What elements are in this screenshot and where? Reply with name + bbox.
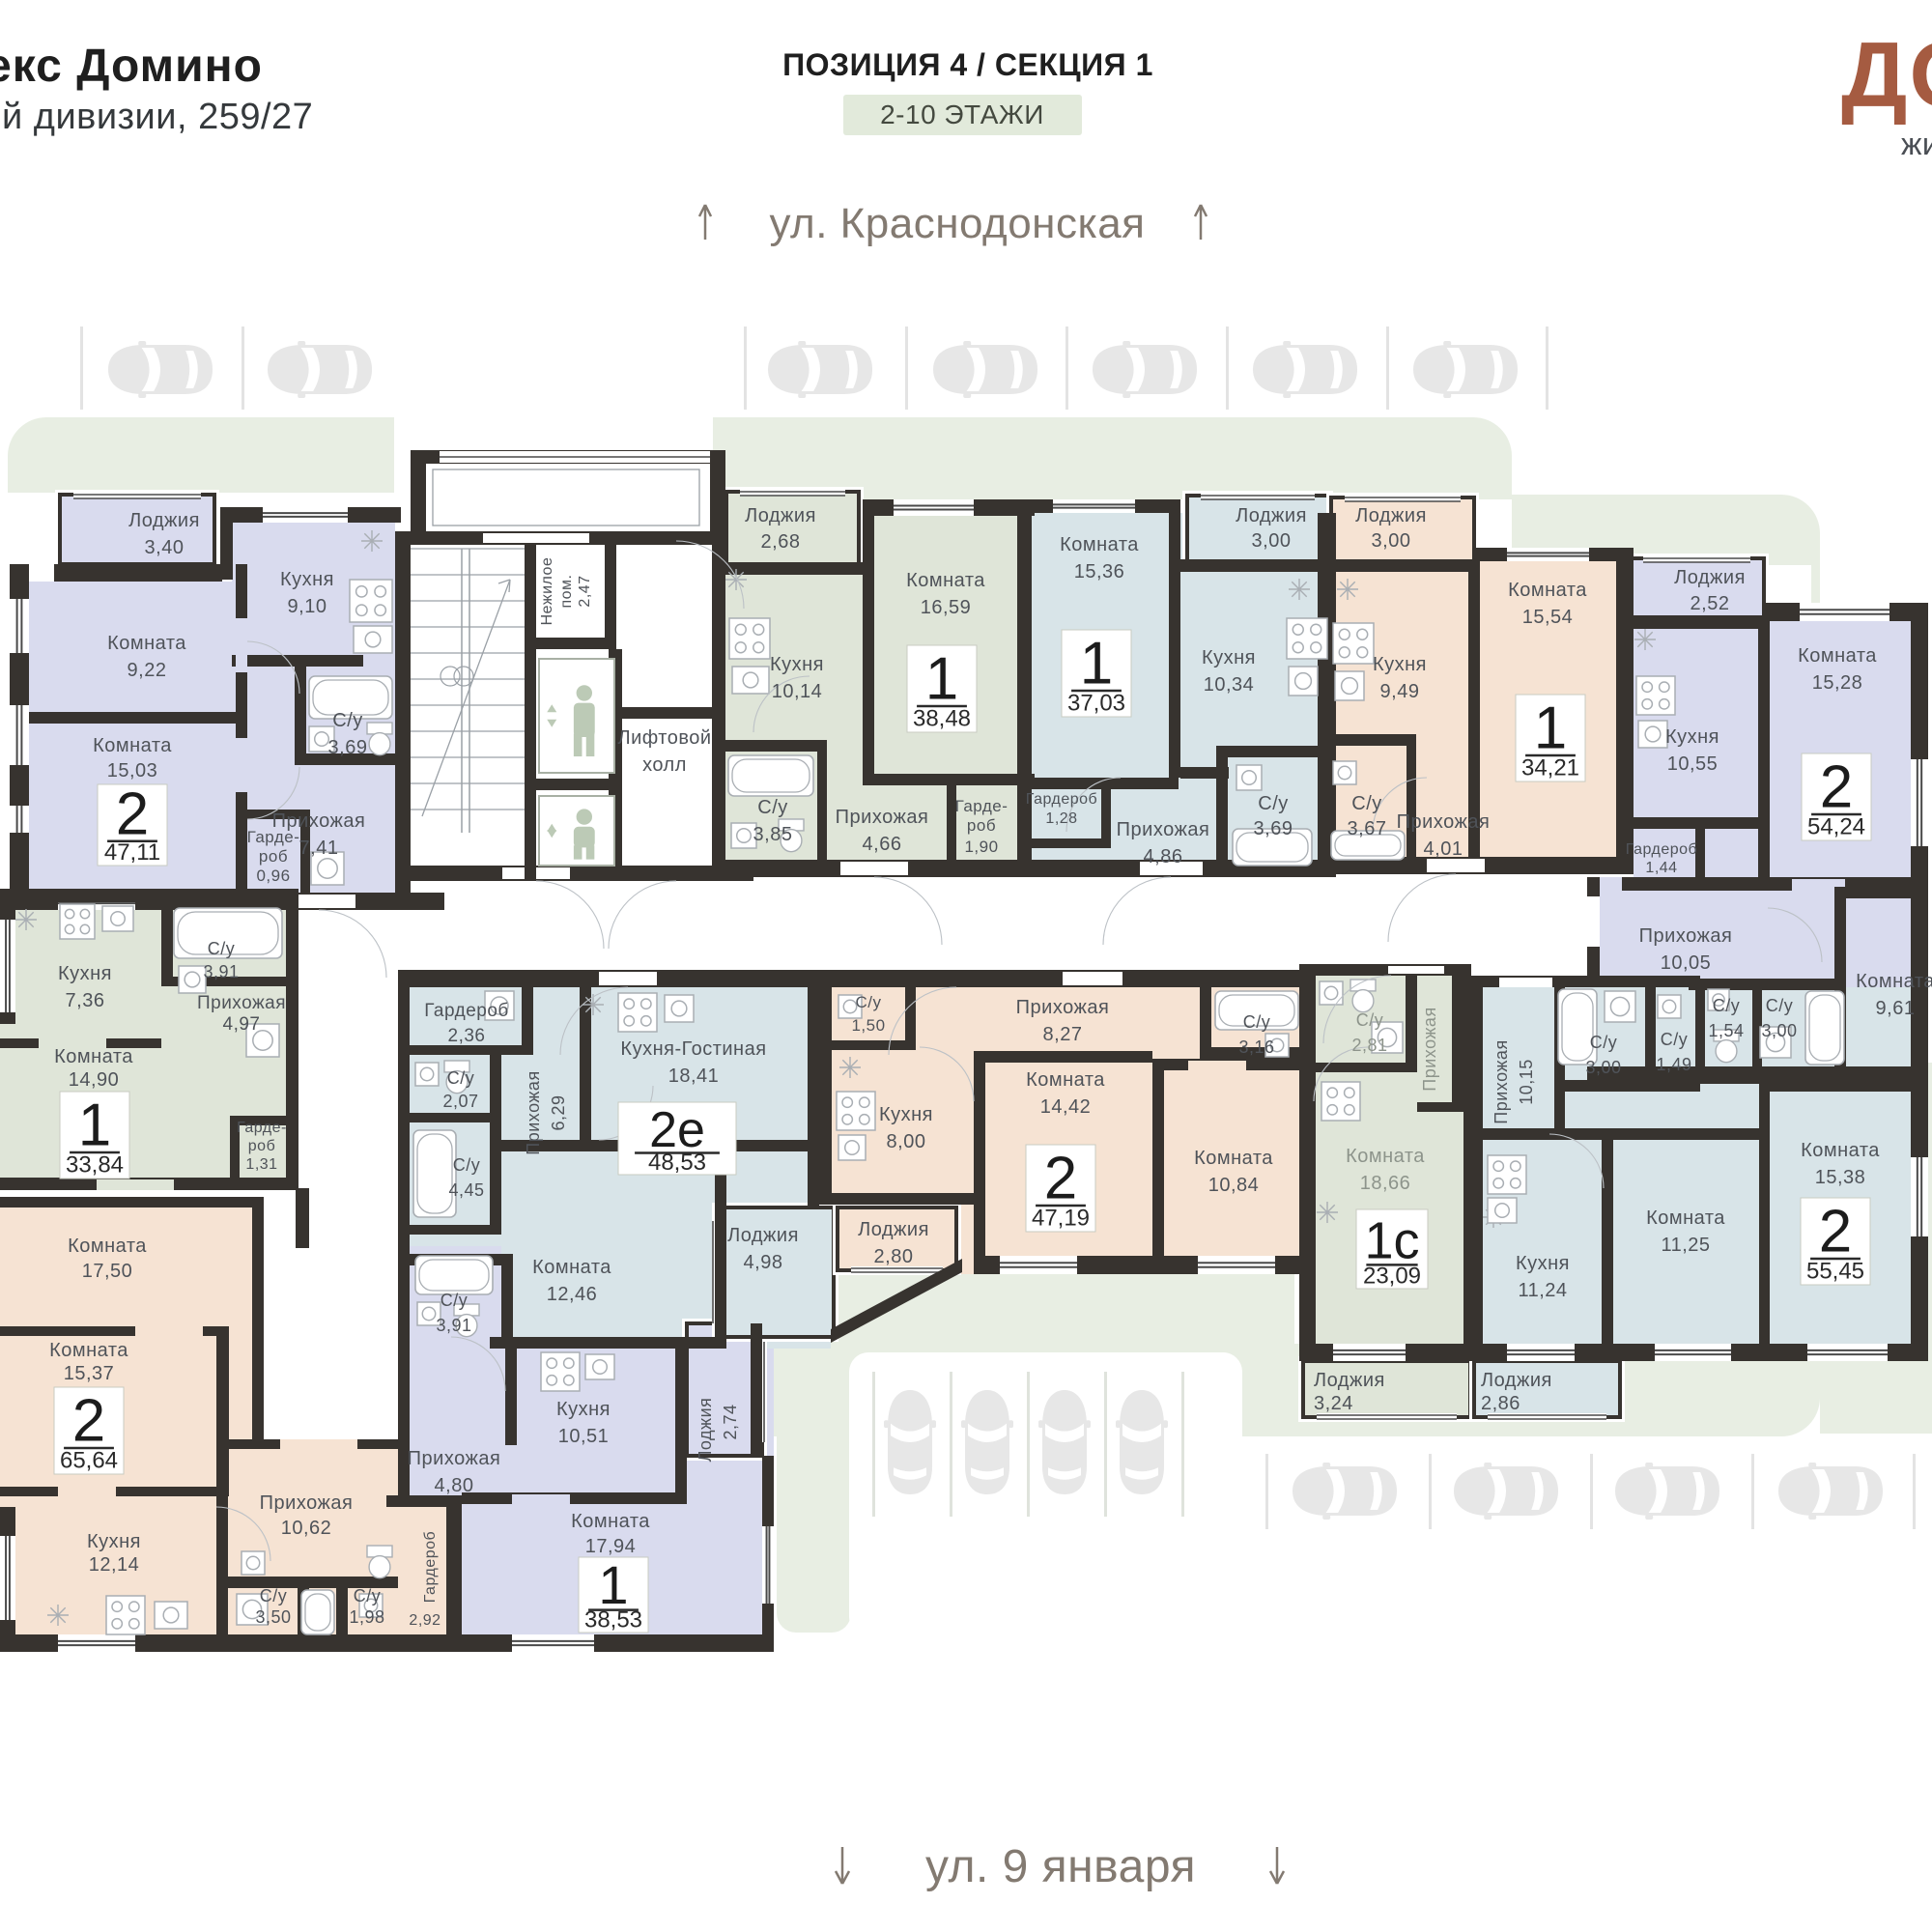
svg-text:Комната: Комната xyxy=(54,1046,133,1067)
svg-text:Комната: Комната xyxy=(532,1257,611,1278)
svg-text:3,85: 3,85 xyxy=(753,824,793,845)
svg-text:Кухня: Кухня xyxy=(770,654,824,675)
svg-text:2,36: 2,36 xyxy=(448,1026,486,1046)
svg-text:3,69: 3,69 xyxy=(1254,818,1293,839)
svg-text:Гарде-: Гарде- xyxy=(237,1120,287,1136)
svg-text:Лоджия: Лоджия xyxy=(1236,505,1307,526)
svg-text:3,00: 3,00 xyxy=(1761,1021,1797,1040)
svg-text:Прихожая: Прихожая xyxy=(260,1492,354,1514)
svg-text:Лоджия: Лоджия xyxy=(1355,505,1427,526)
svg-text:47,19: 47,19 xyxy=(1032,1206,1090,1232)
svg-text:Комната: Комната xyxy=(107,633,186,654)
svg-text:С/у: С/у xyxy=(208,939,236,958)
svg-text:10,05: 10,05 xyxy=(1661,952,1712,974)
svg-text:2,81: 2,81 xyxy=(1351,1036,1387,1055)
svg-text:12,14: 12,14 xyxy=(89,1554,140,1576)
svg-text:Кухня: Кухня xyxy=(556,1399,611,1420)
svg-text:54,24: 54,24 xyxy=(1807,814,1865,840)
svg-text:10,15: 10,15 xyxy=(1517,1059,1536,1105)
svg-text:4,66: 4,66 xyxy=(863,834,902,855)
svg-text:9,22: 9,22 xyxy=(128,660,167,681)
svg-text:Комната: Комната xyxy=(1346,1146,1425,1167)
svg-text:55,45: 55,45 xyxy=(1806,1259,1864,1285)
svg-text:жи: жи xyxy=(1901,127,1932,161)
svg-text:3,00: 3,00 xyxy=(1252,530,1292,552)
svg-text:4,45: 4,45 xyxy=(448,1180,484,1200)
svg-text:С/у: С/у xyxy=(1590,1033,1618,1052)
svg-text:Лоджия: Лоджия xyxy=(727,1225,799,1246)
svg-text:Комната: Комната xyxy=(1646,1207,1725,1229)
svg-text:2-10 ЭТАЖИ: 2-10 ЭТАЖИ xyxy=(880,99,1044,129)
svg-text:15,36: 15,36 xyxy=(1074,561,1125,582)
svg-text:ПОЗИЦИЯ 4 / СЕКЦИЯ 1: ПОЗИЦИЯ 4 / СЕКЦИЯ 1 xyxy=(782,47,1153,82)
svg-text:Прихожая: Прихожая xyxy=(1117,819,1210,840)
svg-text:Лоджия: Лоджия xyxy=(696,1398,715,1463)
svg-text:0,96: 0,96 xyxy=(256,867,290,885)
svg-text:10,55: 10,55 xyxy=(1667,753,1719,775)
svg-text:С/у: С/у xyxy=(856,993,882,1011)
svg-text:С/у: С/у xyxy=(1356,1010,1384,1030)
svg-text:Комната: Комната xyxy=(49,1340,128,1361)
svg-text:4,86: 4,86 xyxy=(1144,846,1183,867)
svg-text:Кухня: Кухня xyxy=(280,569,334,590)
svg-text:Кухня: Кухня xyxy=(1373,654,1427,675)
svg-text:38,53: 38,53 xyxy=(584,1607,642,1634)
svg-text:1: 1 xyxy=(1080,630,1113,696)
svg-text:2,86: 2,86 xyxy=(1481,1393,1520,1414)
svg-text:Лоджия: Лоджия xyxy=(1674,567,1746,588)
svg-text:й дивизии, 259/27: й дивизии, 259/27 xyxy=(2,97,313,137)
svg-text:С/у: С/у xyxy=(453,1155,481,1175)
svg-text:1,31: 1,31 xyxy=(245,1156,277,1173)
svg-text:47,11: 47,11 xyxy=(104,839,160,866)
svg-text:14,42: 14,42 xyxy=(1040,1096,1092,1118)
svg-text:Комната: Комната xyxy=(1060,534,1139,555)
svg-text:Прихожая: Прихожая xyxy=(1639,925,1733,947)
svg-text:2: 2 xyxy=(1044,1145,1077,1211)
svg-text:екс Домино: екс Домино xyxy=(0,41,263,92)
svg-text:3,40: 3,40 xyxy=(145,537,185,558)
svg-text:Комната: Комната xyxy=(1801,1140,1880,1161)
svg-text:Лоджия: Лоджия xyxy=(1314,1370,1385,1391)
svg-text:Прихожая: Прихожая xyxy=(1492,1039,1511,1123)
svg-text:Гардероб: Гардероб xyxy=(424,1001,509,1021)
svg-text:3,67: 3,67 xyxy=(1348,818,1387,839)
svg-text:3,24: 3,24 xyxy=(1314,1393,1353,1414)
svg-text:33,84: 33,84 xyxy=(66,1152,124,1179)
svg-text:16,59: 16,59 xyxy=(921,597,972,618)
svg-text:2,92: 2,92 xyxy=(409,1612,440,1629)
svg-text:С/у: С/у xyxy=(1351,793,1382,814)
svg-text:3,16: 3,16 xyxy=(1238,1037,1274,1057)
svg-text:12,46: 12,46 xyxy=(547,1284,598,1305)
svg-text:4,80: 4,80 xyxy=(435,1475,474,1496)
svg-text:15,37: 15,37 xyxy=(64,1363,115,1384)
svg-text:3,69: 3,69 xyxy=(328,737,368,758)
svg-text:23,09: 23,09 xyxy=(1363,1263,1421,1289)
svg-text:Прихожая: Прихожая xyxy=(408,1448,501,1469)
svg-text:Кухня: Кухня xyxy=(1202,647,1256,668)
svg-text:Лоджия: Лоджия xyxy=(1481,1370,1552,1391)
svg-text:65,64: 65,64 xyxy=(60,1448,118,1474)
svg-text:Лифтовой: Лифтовой xyxy=(617,727,711,749)
svg-text:38,48: 38,48 xyxy=(913,706,971,732)
svg-text:3,00: 3,00 xyxy=(1372,530,1411,552)
svg-text:37,03: 37,03 xyxy=(1067,691,1125,717)
svg-text:Гардероб: Гардероб xyxy=(422,1531,439,1603)
svg-text:2,74: 2,74 xyxy=(721,1404,740,1439)
svg-text:11,24: 11,24 xyxy=(1518,1280,1567,1301)
svg-text:1,54: 1,54 xyxy=(1708,1021,1744,1040)
svg-text:Гардероб: Гардероб xyxy=(1626,841,1697,858)
svg-text:Комната: Комната xyxy=(1026,1069,1105,1091)
svg-text:2,47: 2,47 xyxy=(577,575,593,607)
svg-text:1: 1 xyxy=(598,1554,628,1615)
svg-text:1,50: 1,50 xyxy=(851,1016,885,1035)
svg-text:Гардероб: Гардероб xyxy=(1026,791,1097,808)
svg-text:Прихожая: Прихожая xyxy=(524,1070,543,1154)
svg-text:Гарде-: Гарде- xyxy=(247,828,300,846)
svg-text:1,98: 1,98 xyxy=(349,1607,384,1627)
svg-text:4,97: 4,97 xyxy=(223,1014,261,1035)
svg-text:10,62: 10,62 xyxy=(281,1518,332,1539)
svg-text:3,91: 3,91 xyxy=(203,962,239,981)
svg-text:8,27: 8,27 xyxy=(1043,1024,1083,1045)
svg-text:Комната: Комната xyxy=(1798,645,1877,667)
svg-text:С/у: С/у xyxy=(1661,1030,1689,1049)
svg-text:Кухня-Гостиная: Кухня-Гостиная xyxy=(620,1038,766,1060)
svg-text:34,21: 34,21 xyxy=(1521,755,1579,781)
svg-text:роб: роб xyxy=(248,1138,275,1154)
svg-text:Лоджия: Лоджия xyxy=(128,510,200,531)
svg-text:Комната: Комната xyxy=(906,570,985,591)
svg-text:ДО: ДО xyxy=(1841,23,1932,127)
svg-text:пом.: пом. xyxy=(558,574,575,608)
svg-text:Прихожая: Прихожая xyxy=(1397,811,1491,833)
svg-text:Прихожая: Прихожая xyxy=(836,807,929,828)
svg-text:С/у: С/у xyxy=(1713,996,1741,1015)
svg-text:С/у: С/у xyxy=(354,1586,382,1605)
svg-text:Прихожая: Прихожая xyxy=(197,993,286,1013)
svg-text:Нежилое: Нежилое xyxy=(539,557,555,626)
svg-text:7,41: 7,41 xyxy=(299,838,339,859)
svg-text:Кухня: Кухня xyxy=(879,1104,933,1125)
svg-text:7,36: 7,36 xyxy=(66,990,105,1011)
svg-text:1: 1 xyxy=(925,645,958,712)
svg-text:2: 2 xyxy=(72,1387,105,1454)
svg-text:С/у: С/у xyxy=(447,1068,475,1088)
svg-text:Прихожая: Прихожая xyxy=(1420,1007,1439,1091)
svg-text:Кухня: Кухня xyxy=(1665,726,1719,748)
svg-text:С/у: С/у xyxy=(1243,1012,1271,1032)
svg-text:15,28: 15,28 xyxy=(1812,672,1863,694)
svg-text:роб: роб xyxy=(259,847,288,866)
svg-text:1: 1 xyxy=(1534,695,1567,761)
svg-text:2: 2 xyxy=(1820,753,1853,820)
svg-text:10,84: 10,84 xyxy=(1208,1175,1260,1196)
svg-text:4,98: 4,98 xyxy=(744,1252,783,1273)
svg-text:С/у: С/у xyxy=(332,710,363,731)
svg-text:17,50: 17,50 xyxy=(82,1261,133,1282)
svg-text:10,14: 10,14 xyxy=(772,681,823,702)
svg-text:3,00: 3,00 xyxy=(1585,1058,1621,1077)
svg-text:15,38: 15,38 xyxy=(1815,1167,1866,1188)
svg-text:Комната: Комната xyxy=(1856,971,1932,992)
svg-text:2,80: 2,80 xyxy=(874,1246,914,1267)
svg-text:Комната: Комната xyxy=(1194,1148,1273,1169)
svg-text:Комната: Комната xyxy=(68,1236,147,1257)
svg-text:Комната: Комната xyxy=(93,735,172,756)
svg-text:14,90: 14,90 xyxy=(69,1069,120,1091)
svg-text:1с: 1с xyxy=(1364,1211,1419,1269)
svg-text:10,34: 10,34 xyxy=(1204,674,1255,696)
svg-text:Комната: Комната xyxy=(571,1511,650,1532)
svg-text:ул. Краснодонская: ул. Краснодонская xyxy=(770,200,1146,247)
svg-text:Гарде-: Гарде- xyxy=(955,797,1009,815)
svg-text:2,68: 2,68 xyxy=(761,531,801,553)
svg-text:8,00: 8,00 xyxy=(887,1131,926,1152)
svg-text:11,25: 11,25 xyxy=(1661,1235,1710,1256)
svg-text:6,29: 6,29 xyxy=(549,1094,568,1130)
svg-text:9,10: 9,10 xyxy=(288,596,327,617)
svg-text:Лоджия: Лоджия xyxy=(858,1219,929,1240)
svg-text:1,44: 1,44 xyxy=(1645,860,1677,876)
svg-text:2: 2 xyxy=(1819,1198,1852,1264)
svg-text:15,54: 15,54 xyxy=(1522,607,1574,628)
svg-text:С/у: С/у xyxy=(1258,793,1289,814)
svg-text:9,49: 9,49 xyxy=(1380,681,1420,702)
svg-text:С/у: С/у xyxy=(260,1586,288,1605)
svg-text:Кухня: Кухня xyxy=(87,1531,141,1552)
svg-text:Кухня: Кухня xyxy=(1516,1253,1570,1274)
svg-text:18,41: 18,41 xyxy=(668,1065,720,1087)
svg-text:18,66: 18,66 xyxy=(1360,1173,1411,1194)
svg-text:С/у: С/у xyxy=(440,1291,469,1310)
svg-text:3,91: 3,91 xyxy=(436,1316,471,1335)
svg-text:1,90: 1,90 xyxy=(964,838,998,856)
svg-text:9,61: 9,61 xyxy=(1876,998,1916,1019)
svg-text:холл: холл xyxy=(642,754,687,776)
svg-text:15,03: 15,03 xyxy=(107,760,158,781)
svg-text:2,52: 2,52 xyxy=(1690,593,1730,614)
svg-text:1,28: 1,28 xyxy=(1045,810,1077,827)
svg-text:48,53: 48,53 xyxy=(648,1150,706,1176)
svg-text:Лоджия: Лоджия xyxy=(745,505,816,526)
svg-text:роб: роб xyxy=(967,816,996,835)
svg-text:ул. 9 января: ул. 9 января xyxy=(925,1841,1196,1892)
svg-text:С/у: С/у xyxy=(757,797,788,818)
svg-text:Комната: Комната xyxy=(1508,580,1587,601)
svg-text:1: 1 xyxy=(78,1092,111,1158)
svg-text:2,07: 2,07 xyxy=(442,1092,478,1111)
svg-text:1,49: 1,49 xyxy=(1656,1055,1691,1074)
svg-text:2: 2 xyxy=(116,781,149,848)
svg-text:Кухня: Кухня xyxy=(58,963,112,984)
svg-text:10,51: 10,51 xyxy=(558,1426,610,1447)
svg-text:Прихожая: Прихожая xyxy=(1016,997,1110,1018)
svg-text:С/у: С/у xyxy=(1766,996,1794,1015)
svg-text:4,01: 4,01 xyxy=(1424,838,1463,860)
svg-text:3,50: 3,50 xyxy=(255,1607,291,1627)
